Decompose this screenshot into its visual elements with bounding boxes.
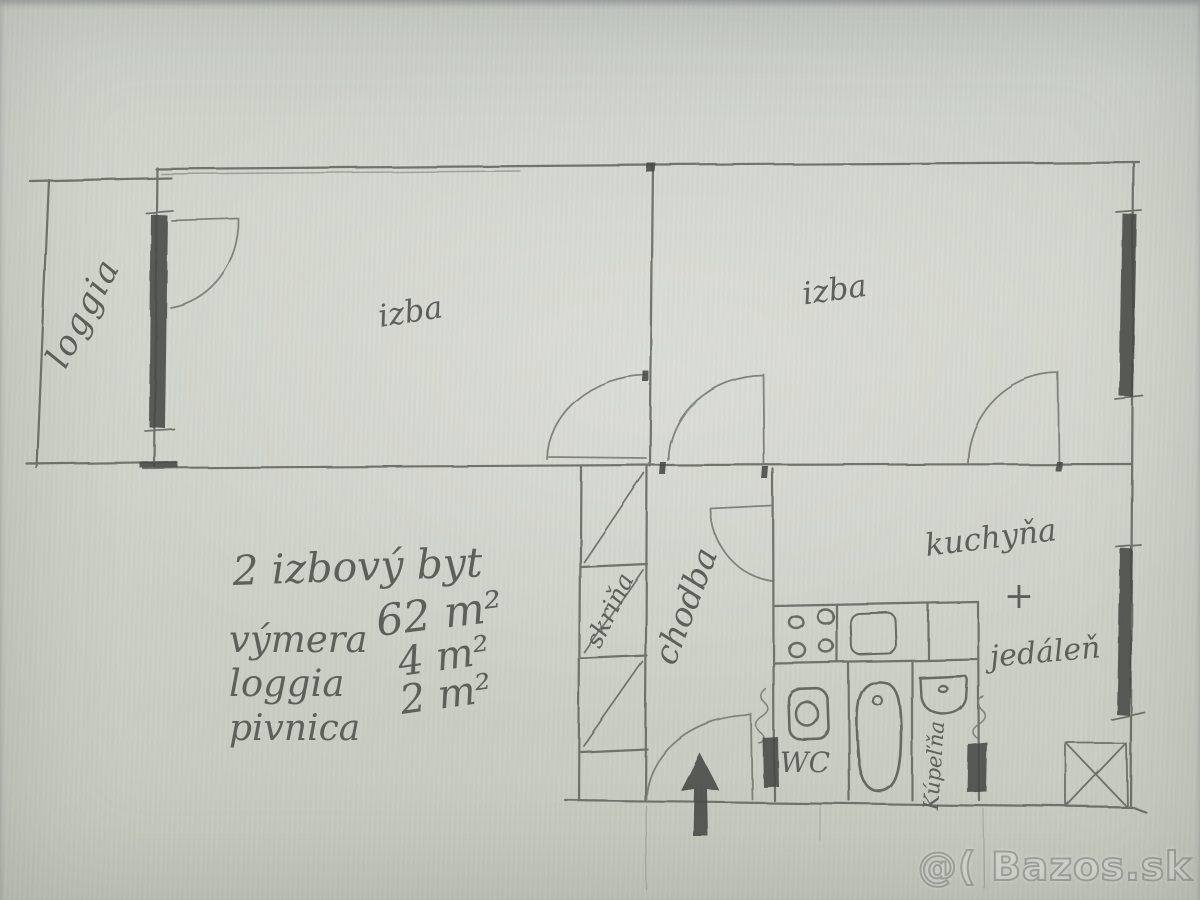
right-room-door-2-leaf	[1058, 372, 1059, 466]
bathtub-icon	[857, 682, 901, 791]
balcony-door-leaf	[172, 219, 239, 221]
note-vymera-label: výmera	[229, 618, 368, 661]
wall-top-double	[161, 171, 520, 174]
right-room-door-1	[668, 374, 764, 464]
left-room-door-arc	[547, 375, 645, 459]
door-leaf-tick-1	[642, 370, 648, 381]
label-plus: +	[1004, 576, 1034, 617]
wall-wc-bath	[848, 662, 849, 800]
closet-shelf-1	[581, 564, 647, 567]
closet-diagonal-1	[584, 473, 644, 562]
closet-shelf-3	[581, 749, 647, 752]
label-kupelna: Kúpeľňa	[919, 720, 949, 812]
window-tick-1a	[1117, 211, 1142, 213]
note-pivnica-label: pivnica	[229, 708, 360, 749]
kitchen-door-arc	[711, 510, 772, 581]
label-izba-left: izba	[376, 289, 445, 335]
label-izba-right: izba	[800, 268, 869, 313]
balcony-door-bar	[149, 215, 168, 428]
labels: loggia izba izba kuchyňa + jedáleň chodb…	[38, 251, 1102, 811]
closet-shelf-2	[581, 656, 647, 659]
watermark: @( Bazos.sk	[918, 845, 1192, 890]
kitchen-counter-top	[774, 602, 978, 606]
toilet-icon	[788, 688, 829, 739]
kitchen-door	[711, 506, 772, 581]
right-room-door-1-arc	[668, 375, 762, 460]
balcony-door-tick-a	[146, 211, 173, 213]
note-title: 2 izbový byt	[231, 538, 484, 595]
wall-hall-left	[579, 466, 581, 801]
door-edge-tick-2	[761, 466, 768, 478]
stove-burners-icon	[789, 610, 834, 657]
label-kuchyna: kuchyňa	[923, 512, 1058, 564]
notes: 2 izbový byt výmera 62 m² loggia 4 m² pi…	[229, 538, 505, 749]
right-room-door-2	[968, 372, 1059, 466]
note-loggia-label: loggia	[229, 662, 344, 705]
door-edge-tick-3	[1056, 462, 1063, 472]
entrance-door-leaf	[751, 714, 752, 799]
closet-diagonal-3	[584, 662, 643, 746]
left-room-door	[547, 375, 646, 459]
crossed-box	[1066, 743, 1127, 807]
wall-bottom	[565, 800, 1146, 812]
wc-door-squiggle	[756, 689, 768, 743]
wall-room-divider	[650, 166, 653, 466]
loggia-wall-top	[30, 178, 171, 181]
balcony-door-tick-b	[145, 429, 174, 431]
washbasin-icon	[920, 676, 967, 714]
balcony-door-arc	[171, 220, 239, 308]
label-wc: WC	[780, 746, 830, 779]
kitchen-counter-bottom	[774, 659, 978, 663]
left-room-door-leaf	[549, 457, 646, 458]
window-tick-2a	[1116, 545, 1141, 547]
door-edge-tick-1	[659, 462, 666, 474]
stray-line-1	[646, 806, 647, 890]
kitchen-door-leaf	[711, 506, 772, 509]
wall-rooms-bottom	[143, 464, 1132, 468]
loggia-wall-left	[37, 180, 49, 468]
right-room-door-1-leaf	[763, 374, 764, 464]
bath-door-bar	[967, 742, 987, 792]
right-room-door-2-arc	[968, 373, 1058, 463]
balcony-door	[171, 219, 239, 308]
label-skrina: skriňa	[579, 568, 640, 652]
wall-dark-segment	[140, 461, 177, 468]
wc-door-bar	[763, 737, 779, 788]
kitchen-sink-icon	[850, 612, 896, 655]
window-right-room-icon	[1119, 213, 1137, 397]
floor-plan-sketch: loggia izba izba kuchyňa + jedáleň chodb…	[0, 0, 1200, 900]
floor-plan-photo: loggia izba izba kuchyňa + jedáleň chodb…	[0, 0, 1200, 900]
label-loggia: loggia	[38, 251, 129, 374]
label-chodba: chodba	[645, 542, 725, 669]
label-jedalen: jedáleň	[982, 630, 1101, 675]
entrance-arrow-icon	[681, 753, 720, 836]
wall-junction-tick-1	[646, 163, 656, 172]
